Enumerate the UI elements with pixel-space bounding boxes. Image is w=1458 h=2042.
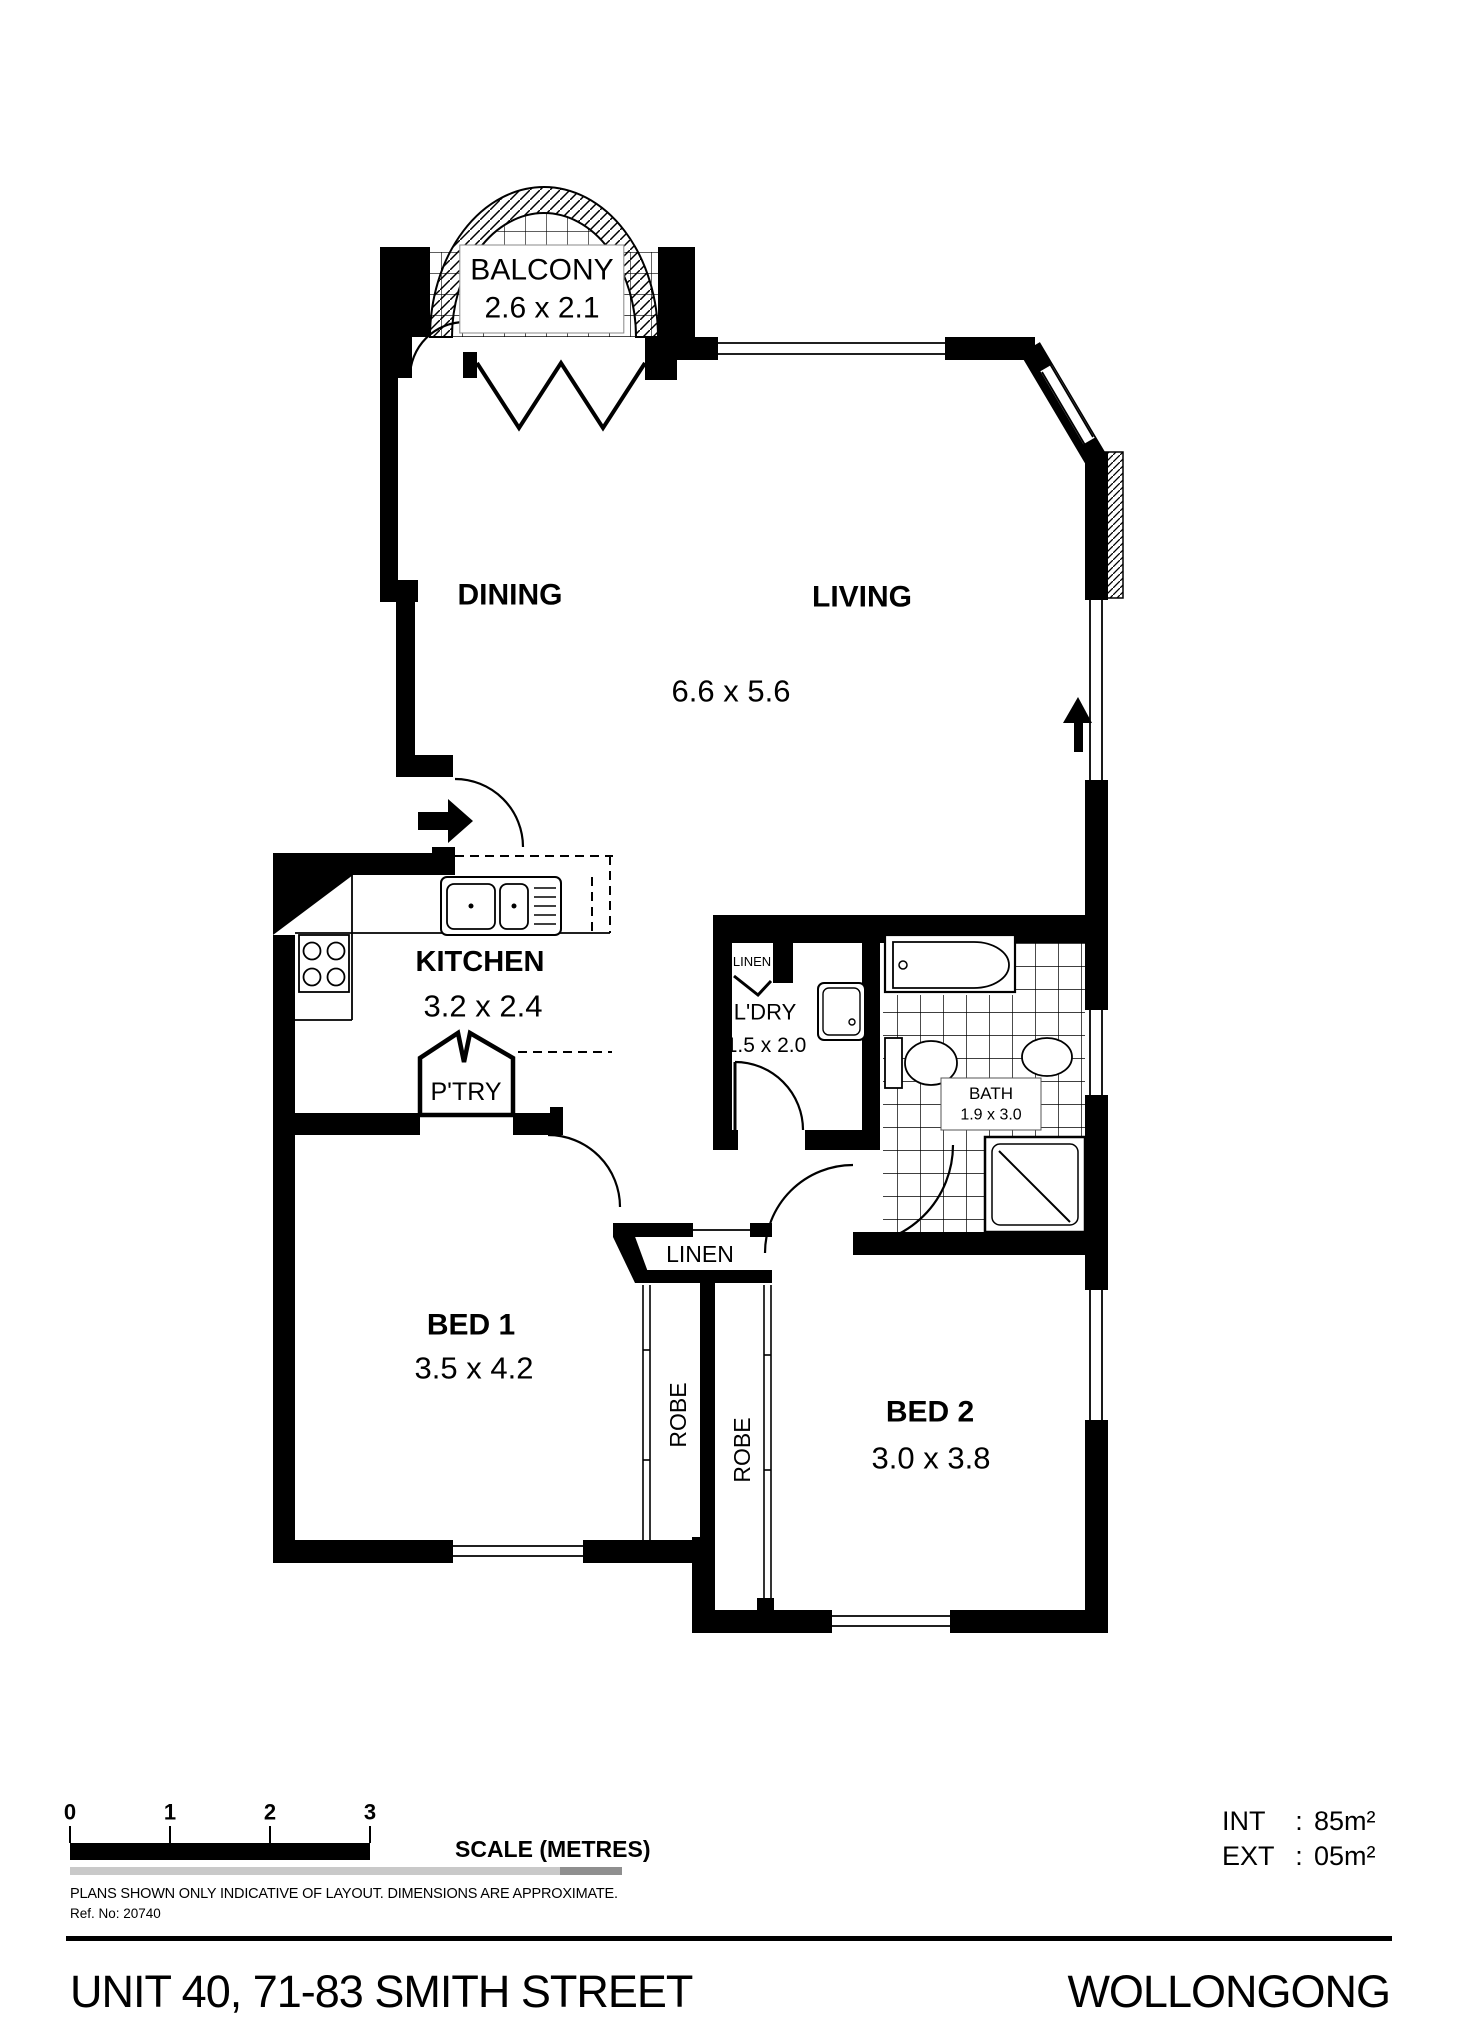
ext-colon: : bbox=[1284, 1841, 1314, 1872]
scale-tick-1: 1 bbox=[164, 1800, 176, 1823]
balcony-label-box: BALCONY 2.6 x 2.1 bbox=[459, 245, 624, 334]
basin bbox=[1022, 1038, 1072, 1076]
robe1-label: ROBE bbox=[666, 1382, 690, 1447]
shower bbox=[985, 1137, 1085, 1232]
bifold-door-zigzag bbox=[477, 363, 645, 428]
kitchen-label: KITCHEN bbox=[416, 947, 545, 977]
cooktop bbox=[299, 935, 349, 992]
disclaimer-text: PLANS SHOWN ONLY INDICATIVE OF LAYOUT. D… bbox=[70, 1886, 618, 1902]
laundry-dim: 1.5 x 2.0 bbox=[726, 1035, 807, 1057]
divider-rule bbox=[66, 1936, 1392, 1941]
ext-label: EXT bbox=[1222, 1841, 1284, 1872]
int-value: 85m² bbox=[1314, 1806, 1409, 1837]
linen-b-label: LINEN bbox=[666, 1242, 734, 1266]
laundry-tub bbox=[818, 983, 865, 1040]
int-label: INT bbox=[1222, 1806, 1284, 1837]
entry-door-arc bbox=[455, 779, 523, 847]
scale-tick-0: 0 bbox=[64, 1800, 76, 1823]
scale-tick-3: 3 bbox=[364, 1800, 376, 1823]
int-colon: : bbox=[1284, 1806, 1314, 1837]
entry-arrow-icon bbox=[418, 799, 473, 843]
laundry-label: L'DRY bbox=[734, 1000, 797, 1023]
balcony-dim: 2.6 x 2.1 bbox=[470, 289, 613, 327]
living-label: LIVING bbox=[812, 581, 912, 613]
bathtub bbox=[885, 935, 1015, 992]
floor-plan-drawing bbox=[0, 0, 1458, 2042]
floor-plan-page: BALCONY 2.6 x 2.1 DINING LIVING 6.6 x 5.… bbox=[0, 0, 1458, 2042]
laundry-door-arc bbox=[735, 1062, 803, 1130]
linen-a-label: LINEN bbox=[733, 955, 771, 969]
bed2-label: BED 2 bbox=[886, 1396, 974, 1428]
bath-label: BATH bbox=[969, 1085, 1013, 1103]
bath-dim: 1.9 x 3.0 bbox=[960, 1108, 1021, 1125]
kitchen-sink bbox=[441, 877, 561, 935]
scale-label: SCALE (METRES) bbox=[455, 1836, 651, 1863]
bed2-door-arc bbox=[765, 1165, 853, 1253]
bed1-dim: 3.5 x 4.2 bbox=[415, 1353, 534, 1386]
kitchen-dim: 3.2 x 2.4 bbox=[424, 991, 543, 1024]
bed2-dim: 3.0 x 3.8 bbox=[872, 1443, 991, 1476]
living-dim: 6.6 x 5.6 bbox=[672, 676, 791, 709]
balcony-label: BALCONY bbox=[470, 252, 613, 290]
bed1-label: BED 1 bbox=[427, 1309, 515, 1341]
ext-value: 05m² bbox=[1314, 1841, 1409, 1872]
wall-vent-strip bbox=[1097, 452, 1123, 598]
robe2-label: ROBE bbox=[730, 1417, 754, 1482]
linen-door bbox=[734, 976, 771, 995]
dining-label: DINING bbox=[458, 579, 563, 611]
address-title: UNIT 40, 71-83 SMITH STREET bbox=[70, 1966, 692, 2018]
pantry-label: P'TRY bbox=[431, 1079, 502, 1105]
ref-number: Ref. No: 20740 bbox=[70, 1906, 161, 1921]
area-summary: INT : 85m² EXT : 05m² bbox=[1222, 1806, 1409, 1872]
city-title: WOLLONGONG bbox=[1067, 1966, 1390, 2018]
scale-tick-2: 2 bbox=[264, 1800, 276, 1823]
bed1-door-arc bbox=[548, 1135, 620, 1207]
